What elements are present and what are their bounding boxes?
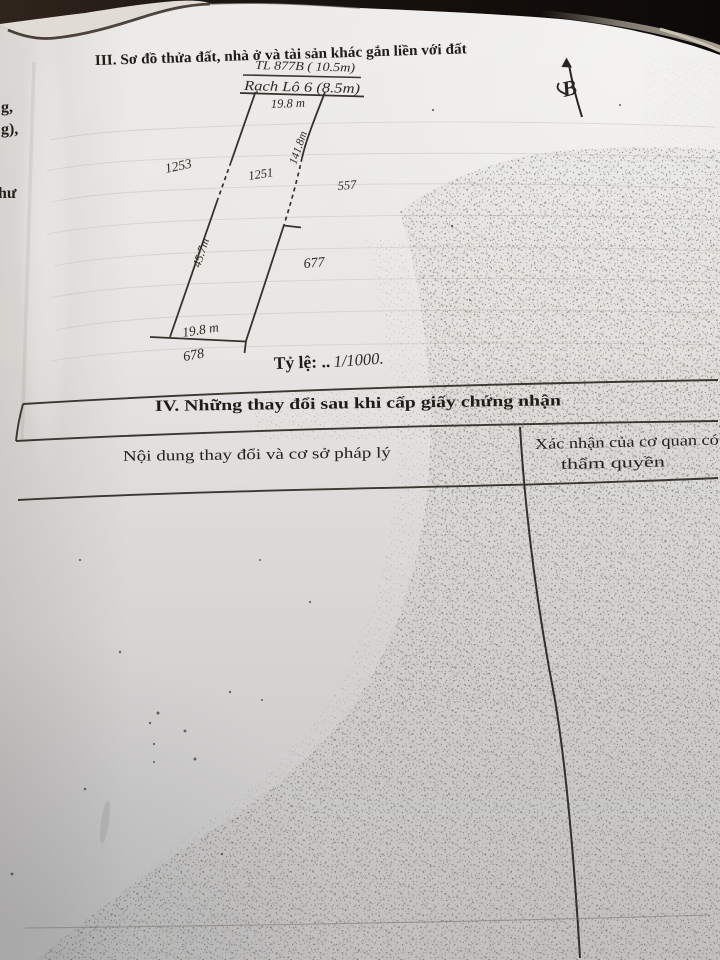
svg-text:hư: hư <box>0 185 17 202</box>
svg-text:g),: g), <box>1 121 18 138</box>
svg-text:thẩm quyền: thẩm quyền <box>561 454 666 473</box>
svg-text:TL 877B ( 10.5m): TL 877B ( 10.5m) <box>255 58 355 75</box>
svg-text:g,: g, <box>1 99 13 116</box>
svg-text:19.8 m: 19.8 m <box>271 96 305 111</box>
svg-text:557: 557 <box>337 177 358 193</box>
svg-text:677: 677 <box>303 255 326 272</box>
svg-text:Tỷ lệ: ..: Tỷ lệ: .. <box>273 351 330 373</box>
svg-text:1/1000.: 1/1000. <box>333 349 384 371</box>
